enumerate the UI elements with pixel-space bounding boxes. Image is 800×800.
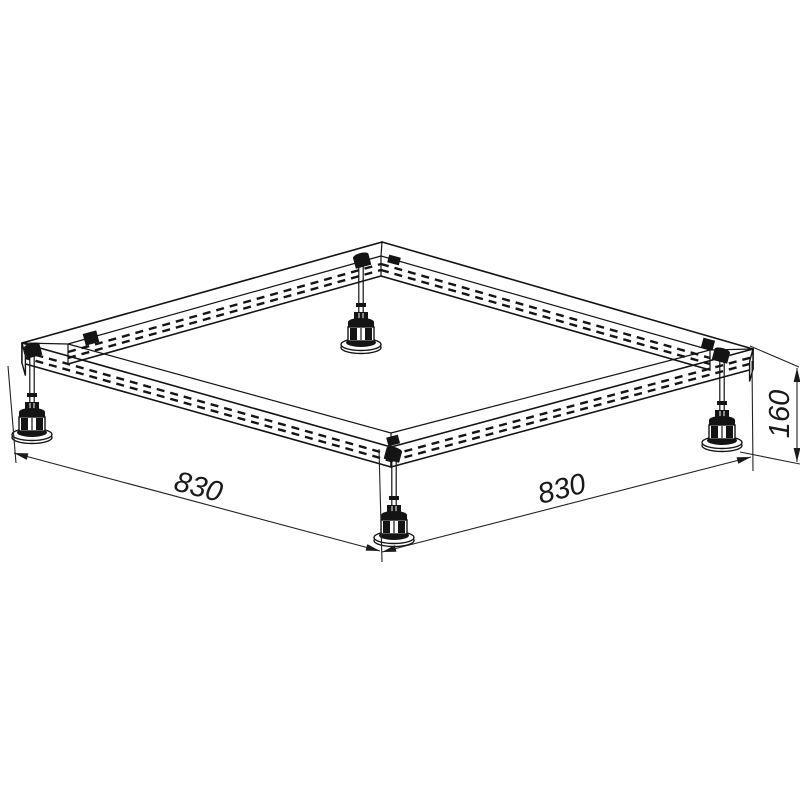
right-leg-bracket [712,346,731,364]
dimension-width-left-label: 830 [171,466,226,509]
back-foot [341,303,381,354]
dimension-width-right-label: 830 [534,468,589,511]
dimension-height-label: 160 [764,390,796,438]
frame [22,242,753,467]
back-leg [341,251,381,353]
dimension-width-right: 830 [382,457,751,552]
technical-drawing-canvas: 830 830 160 [0,0,800,800]
isometric-frame-drawing: 830 830 160 [0,0,800,800]
left-foot [12,393,52,444]
right-foot [702,401,742,452]
dimension-width-left: 830 [14,453,380,551]
left-leg [12,341,52,443]
adjustable-feet [12,251,742,546]
dimension-height: 160 [764,368,797,462]
back-leg-bracket [352,251,371,269]
rail-clamp-marks [83,255,715,447]
